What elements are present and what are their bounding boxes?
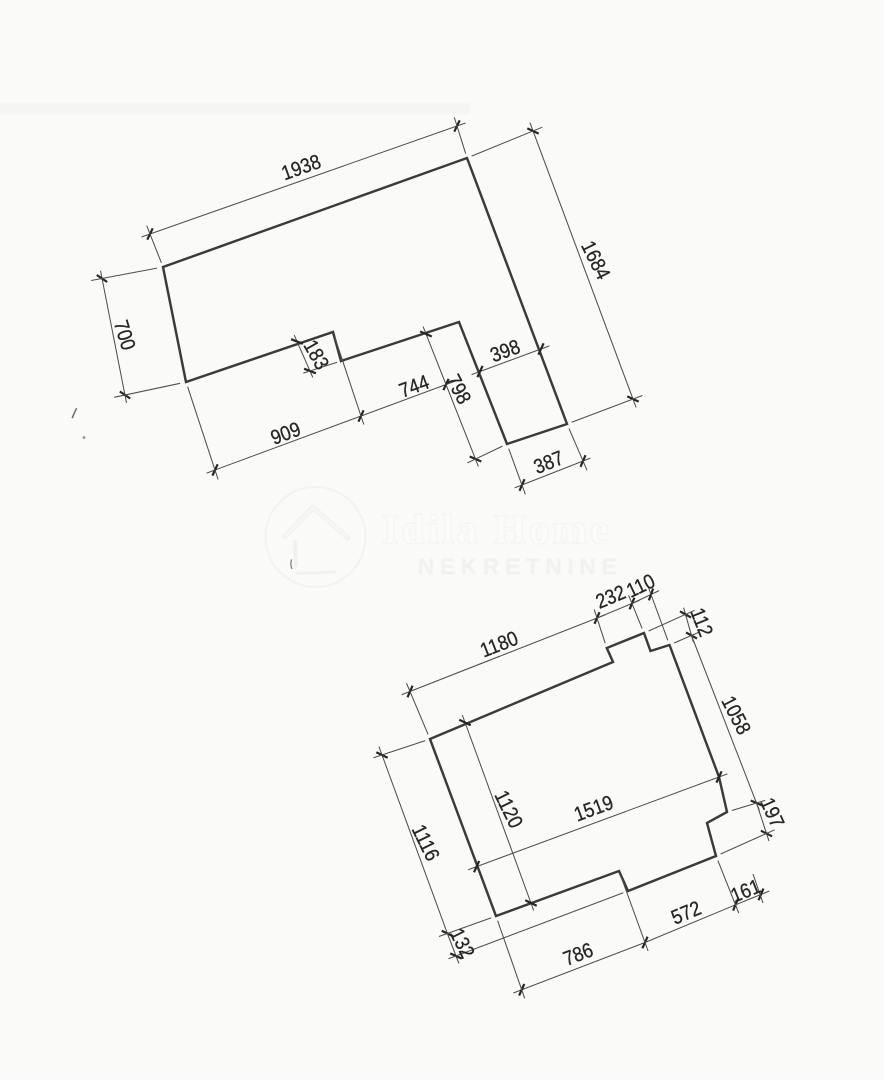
svg-text:Idila Home: Idila Home [382,506,611,552]
svg-text:NEKRETNINE: NEKRETNINE [418,554,623,580]
